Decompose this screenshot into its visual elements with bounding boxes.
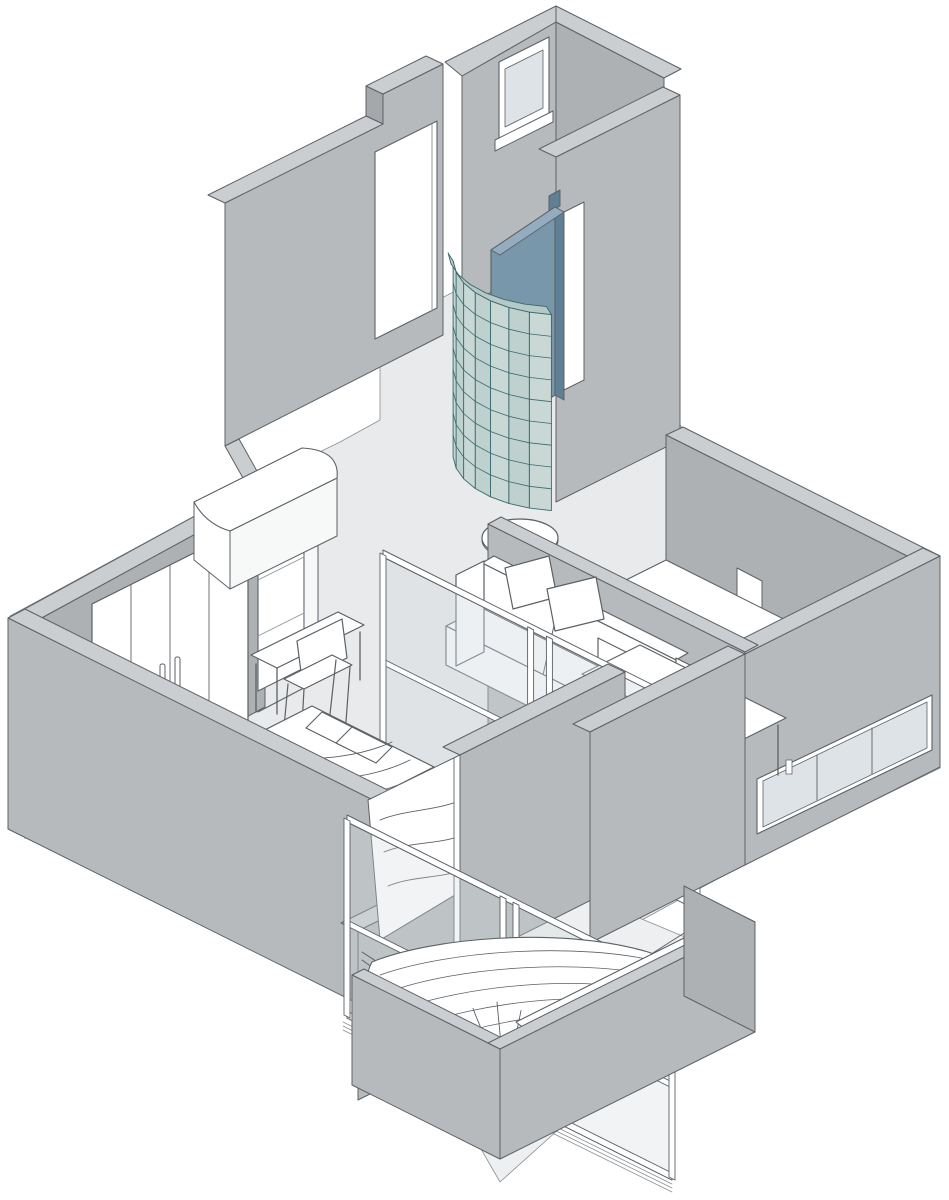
glass-block-column: [529, 312, 551, 511]
glass-block-column: [491, 301, 509, 504]
glass-block-column: [509, 307, 530, 508]
partition-stile: [380, 553, 386, 753]
glass-block-column: [464, 283, 476, 489]
bathroom-door-jamb: [564, 202, 584, 390]
apartment-axonometric-illustration: [0, 0, 949, 1200]
floor-plan-canvas: [0, 0, 949, 1200]
kitchen-window-latch: [786, 760, 792, 774]
glass-block-column: [475, 293, 490, 497]
entry-door-opening-panel: [375, 121, 437, 339]
entry-door-opening: [375, 121, 437, 339]
balcony-door-stile: [344, 818, 350, 1018]
bathroom-door-edge: [555, 207, 564, 400]
